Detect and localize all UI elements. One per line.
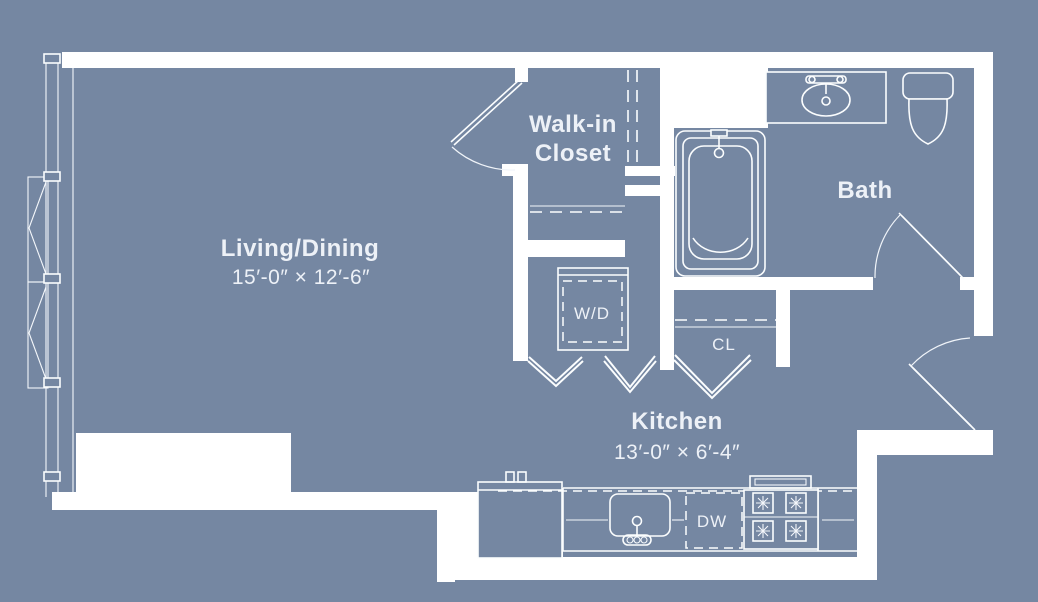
bath-door-stub [960, 277, 974, 290]
bath-bottom-wall [660, 277, 873, 290]
refrigerator [478, 472, 562, 558]
structural-block [76, 433, 291, 492]
plumbing-wall [660, 128, 674, 370]
burner-icon [786, 521, 806, 541]
living-room-dims: 15′-0″ × 12′-6″ [232, 266, 370, 289]
top-wall [62, 52, 993, 68]
kitchen-bottom-wall [455, 557, 877, 580]
walk-in-closet-label-1: Walk-in [529, 111, 617, 138]
closet-return-wall-2 [625, 185, 660, 196]
burner-icon [786, 493, 806, 513]
closet-door-stub [515, 66, 528, 82]
burner-icon [753, 521, 773, 541]
kitchen-label: Kitchen [631, 408, 723, 435]
cl-right-wall [776, 290, 790, 367]
bath-label: Bath [837, 177, 892, 204]
kitchen-dims: 13′-0″ × 6′-4″ [614, 441, 740, 464]
walk-in-closet-label-2: Closet [535, 140, 611, 167]
hall-closet-label: CL [712, 335, 736, 354]
burner-icon [753, 493, 773, 513]
dishwasher-label: DW [697, 512, 727, 531]
entry-bottom-wall [857, 430, 993, 455]
closet-bottom-wall [527, 240, 625, 257]
laundry-label: W/D [574, 304, 610, 323]
living-room-label: Living/Dining [221, 235, 379, 262]
living-closet-wall [513, 164, 528, 361]
floor-plan: Living/Dining 15′-0″ × 12′-6″ Walk-in Cl… [0, 0, 1038, 602]
right-wall [974, 52, 993, 336]
bathroom-sink [766, 72, 886, 123]
tub-nook-wall [660, 68, 768, 128]
step-wall [437, 510, 455, 582]
bathtub [676, 130, 765, 276]
